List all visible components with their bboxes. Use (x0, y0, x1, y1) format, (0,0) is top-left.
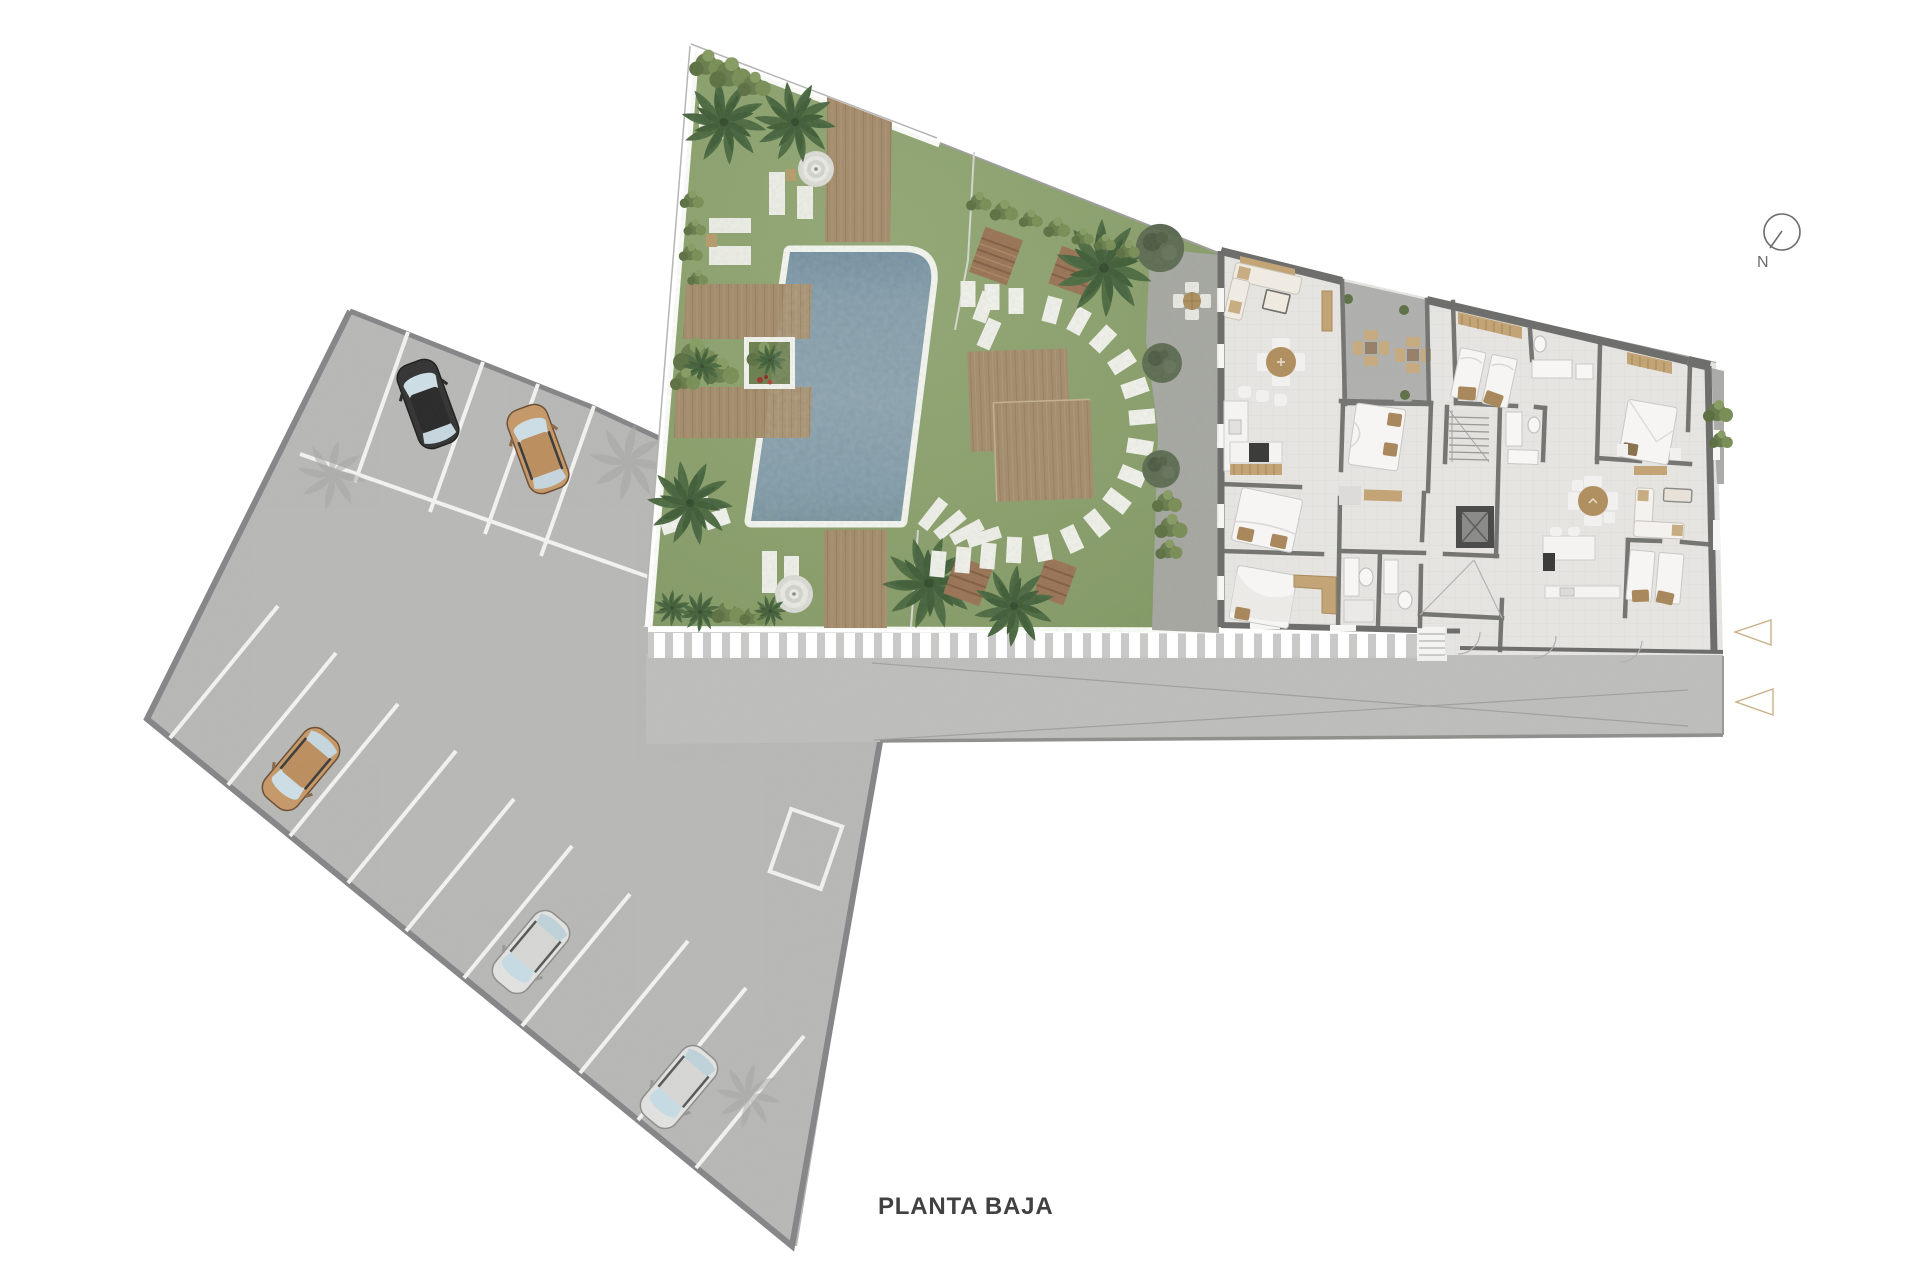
svg-text:N: N (1757, 254, 1769, 271)
svg-text:PLANTA BAJA: PLANTA BAJA (878, 1193, 1053, 1220)
